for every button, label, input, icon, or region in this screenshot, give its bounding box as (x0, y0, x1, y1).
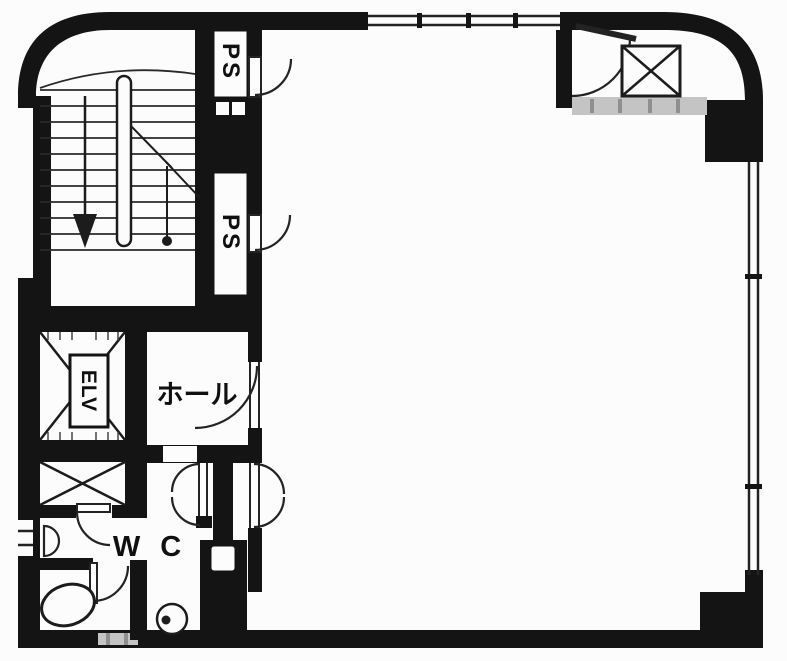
stair-center-rail (117, 76, 131, 246)
floor-plan-canvas: PS PS (0, 0, 787, 661)
wc-mid-wall (213, 460, 233, 540)
elevator-label: ELV (77, 370, 100, 412)
wc-fixture-icon (157, 604, 187, 634)
hall-label: ホール (157, 380, 238, 410)
stair-bottom-wall (18, 306, 213, 332)
left-wall-vent (18, 520, 33, 556)
left-wall-step (18, 278, 51, 308)
top-wall-left (110, 12, 368, 30)
left-wall-upper (33, 96, 51, 280)
ps-top-label: PS (217, 43, 244, 81)
wc-stall-divider (130, 560, 147, 640)
entry-room-left-wall (556, 30, 572, 108)
elevator-bottom-wall (18, 440, 147, 462)
wc-sink-box-icon (210, 545, 236, 572)
wc-stall-wall (33, 558, 93, 570)
stair-right-wall (195, 12, 213, 310)
right-wall-upper-block (705, 100, 763, 162)
left-wall-lower (18, 306, 40, 648)
entry-duct-x-icon (622, 46, 680, 96)
floor-plan-drawing: PS PS (0, 0, 787, 661)
elevator-right-wall (125, 310, 147, 518)
wc-label: W C (113, 531, 187, 563)
ps-bottom-label: PS (217, 214, 244, 252)
ps-bottom-closet: PS (213, 172, 248, 296)
ps-top-closet: PS (213, 30, 248, 98)
